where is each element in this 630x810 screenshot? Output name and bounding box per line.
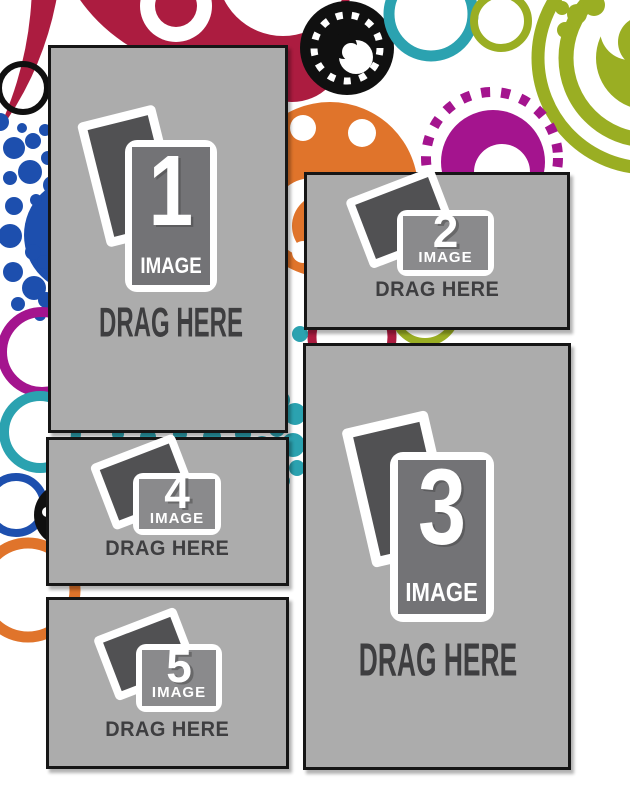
drag-here-label: DRAG HERE <box>49 718 286 742</box>
image-slot-5[interactable]: 5 IMAGE DRAG HERE <box>46 597 289 769</box>
black-dashed-circle-art <box>300 1 394 95</box>
photo-front-icon: 4 IMAGE <box>133 473 221 535</box>
image-label: IMAGE <box>406 579 478 605</box>
slot-number: 5 <box>166 648 192 685</box>
photo-front-icon: 5 IMAGE <box>136 644 222 712</box>
image-slot-1[interactable]: 1 IMAGE DRAG HERE <box>48 45 288 433</box>
photo-front-inner: 5 IMAGE <box>142 650 216 706</box>
olive-ring-top <box>474 0 528 48</box>
slot-number: 2 <box>433 213 459 250</box>
image-label: IMAGE <box>150 511 204 526</box>
image-slot-4[interactable]: 4 IMAGE DRAG HERE <box>46 437 289 586</box>
photo-front-inner: 1 IMAGE <box>132 147 210 285</box>
photo-front-icon: 2 IMAGE <box>397 210 494 276</box>
drag-here-label: DRAG HERE <box>306 636 568 686</box>
drag-here-label: DRAG HERE <box>307 278 567 302</box>
teal-ring-top <box>389 0 473 56</box>
drag-here-label: DRAG HERE <box>49 537 286 561</box>
collage-canvas: 1 IMAGE DRAG HERE 2 IMAGE DRAG HERE 3 IM… <box>0 0 630 810</box>
image-label: IMAGE <box>418 250 472 265</box>
image-slot-2[interactable]: 2 IMAGE DRAG HERE <box>304 172 570 330</box>
image-label: IMAGE <box>152 685 206 700</box>
photo-front-icon: 1 IMAGE <box>125 140 217 292</box>
slot-number: 3 <box>418 464 466 550</box>
photo-front-inner: 4 IMAGE <box>139 479 215 529</box>
image-slot-3[interactable]: 3 IMAGE DRAG HERE <box>303 343 571 770</box>
slot-number: 4 <box>164 474 190 511</box>
image-label: IMAGE <box>140 255 201 277</box>
green-swirl-art <box>538 0 630 168</box>
photo-front-icon: 3 IMAGE <box>390 452 494 622</box>
photo-front-inner: 2 IMAGE <box>403 216 488 270</box>
drag-here-label: DRAG HERE <box>51 301 285 346</box>
slot-number: 1 <box>149 151 194 231</box>
photo-front-inner: 3 IMAGE <box>398 460 486 614</box>
